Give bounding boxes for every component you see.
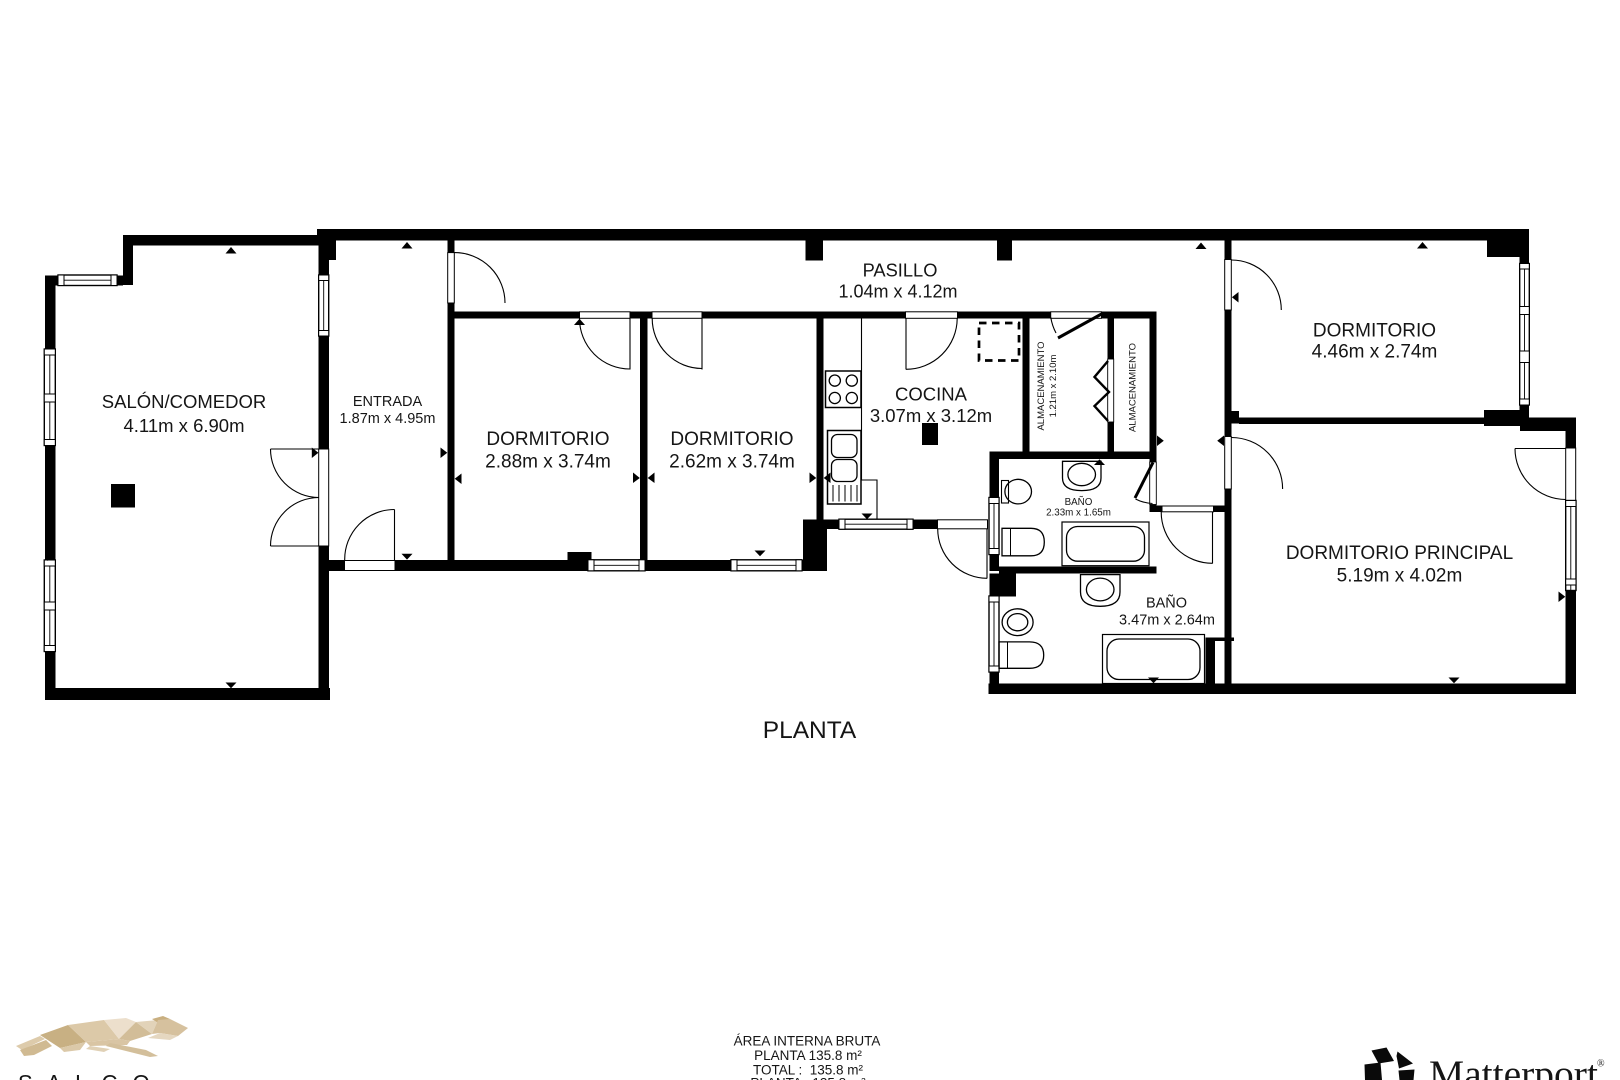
svg-text:1.04m x 4.12m: 1.04m x 4.12m: [838, 282, 957, 302]
svg-text:PLANTA 135.8 m²: PLANTA 135.8 m²: [754, 1048, 862, 1063]
svg-text:PLANTA: PLANTA: [763, 717, 857, 744]
svg-text:ÁREA INTERNA BRUTA: ÁREA INTERNA BRUTA: [734, 1034, 881, 1049]
svg-text:ALMACENAMIENTO: ALMACENAMIENTO: [1036, 341, 1047, 430]
svg-text:ENTRADA: ENTRADA: [353, 394, 423, 410]
svg-text:SALÓN/COMEDOR: SALÓN/COMEDOR: [102, 391, 266, 412]
svg-text:DORMITORIO PRINCIPAL: DORMITORIO PRINCIPAL: [1286, 543, 1513, 564]
svg-text:PLANTA : 135.8 m²: PLANTA : 135.8 m²: [750, 1076, 866, 1080]
svg-text:3.07m x 3.12m: 3.07m x 3.12m: [870, 405, 992, 426]
svg-text:®: ®: [1597, 1059, 1605, 1070]
svg-text:DORMITORIO: DORMITORIO: [670, 429, 793, 450]
svg-text:S A L C O: S A L C O: [18, 1071, 154, 1080]
svg-text:1.21m x 2.10m: 1.21m x 2.10m: [1048, 355, 1059, 418]
svg-text:4.11m x 6.90m: 4.11m x 6.90m: [124, 415, 245, 436]
svg-text:BAÑO: BAÑO: [1146, 595, 1187, 612]
svg-text:DORMITORIO: DORMITORIO: [486, 429, 609, 450]
svg-text:ALMACENAMIENTO: ALMACENAMIENTO: [1128, 343, 1139, 432]
svg-text:2.33m x 1.65m: 2.33m x 1.65m: [1046, 508, 1111, 519]
svg-text:2.62m x 3.74m: 2.62m x 3.74m: [669, 452, 795, 473]
svg-text:5.19m x 4.02m: 5.19m x 4.02m: [1337, 566, 1463, 587]
svg-text:PASILLO: PASILLO: [863, 260, 938, 281]
svg-text:Matterport: Matterport: [1429, 1052, 1598, 1080]
svg-text:4.46m x 2.74m: 4.46m x 2.74m: [1312, 342, 1438, 363]
svg-text:DORMITORIO: DORMITORIO: [1313, 321, 1436, 342]
svg-text:2.88m x 3.74m: 2.88m x 3.74m: [485, 452, 611, 473]
svg-text:3.47m x 2.64m: 3.47m x 2.64m: [1119, 613, 1215, 629]
svg-text:1.87m x 4.95m: 1.87m x 4.95m: [340, 411, 436, 427]
svg-text:BAÑO: BAÑO: [1065, 497, 1093, 508]
svg-text:COCINA: COCINA: [895, 384, 968, 405]
